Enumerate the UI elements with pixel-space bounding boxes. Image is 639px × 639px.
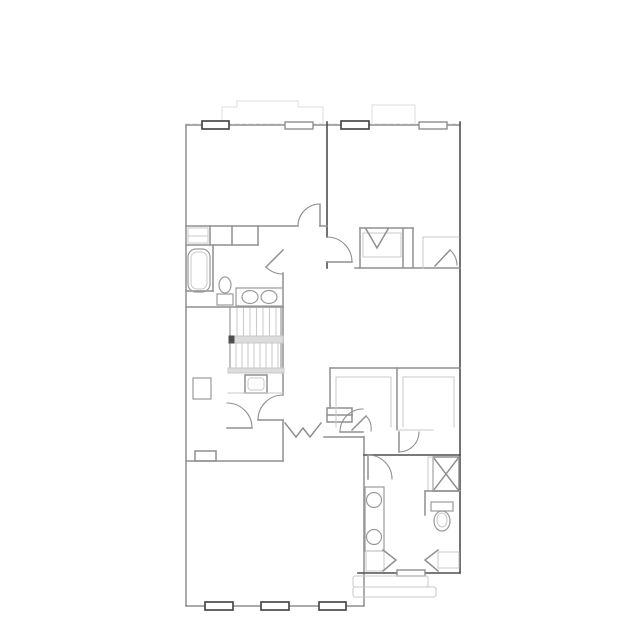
foyer-door3-leaf [352,416,366,430]
vanity1-sink-right [261,291,277,304]
utility-sink-basin [248,378,264,390]
vanity2-sink-bottom [367,530,382,545]
bed2-door-arc [298,204,320,226]
hall-door1-arc [227,403,252,428]
bath1-door-arc [266,267,283,274]
floor-plan-page [0,0,639,639]
floor-plan-canvas [0,0,639,639]
window [319,602,346,610]
window [205,602,233,610]
window [261,602,289,610]
window [341,121,369,129]
bed3-door-arc [327,237,352,262]
closet2-door-leaf [435,250,450,266]
bath2-door-arc [368,455,392,479]
closetB-shelf [403,377,454,427]
stairs-bottom-bar [228,368,284,373]
toilet2-bowl [434,511,450,531]
step-lower [353,587,436,597]
foyer-door3-arc [366,416,371,431]
vanity1-sink-left [242,291,258,304]
window [285,122,313,129]
vanity1-counter [236,288,283,306]
closet1-bifold-door [366,229,388,248]
bathtub-inner [191,252,207,289]
vanity2-sink-top [367,493,382,508]
toilet1-bowl [219,277,231,293]
closet2-shelf [423,237,459,268]
closetB-door-arc [399,432,419,452]
bath2-pocket-door-left [383,550,396,571]
closet1-shelf [363,233,401,257]
laundry-box [193,378,211,399]
bath2-threshold [397,570,425,576]
window [419,122,447,129]
closet2-door-arc [450,250,457,265]
stairs-newel [229,336,234,343]
roof-outline-right [372,105,415,125]
foyer-double-door [285,423,321,437]
greatroom-niche [195,451,216,461]
toilet2-bowl-inner [437,513,447,527]
toilet1-tank [217,294,233,305]
toilet2-tank [431,502,453,511]
stairs-landing-bar [229,336,283,343]
hall-door2-arc [258,395,283,420]
window [202,121,229,129]
bath1-door-leaf [266,250,283,267]
vanity2-cabinet [366,551,384,571]
bath2-cabinet [438,552,459,568]
bath2-pocket-door-right [425,550,438,571]
